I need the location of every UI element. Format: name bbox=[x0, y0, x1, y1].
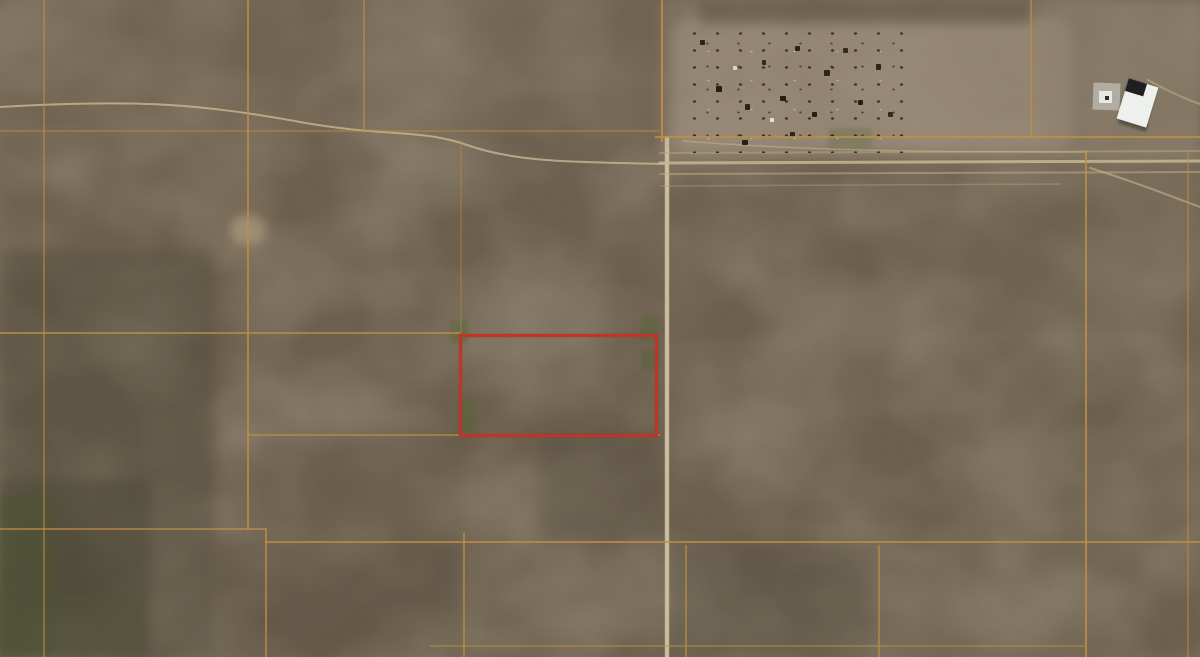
satellite-map-view[interactable] bbox=[0, 0, 1200, 657]
dirt-road bbox=[683, 141, 1085, 152]
dirt-road bbox=[0, 103, 666, 164]
dirt-road bbox=[1090, 168, 1200, 207]
dirt-road bbox=[660, 184, 1060, 186]
dirt-road bbox=[660, 161, 1200, 163]
dirt-roads-layer bbox=[0, 0, 1200, 657]
dirt-road bbox=[1148, 80, 1200, 104]
dirt-road bbox=[660, 172, 1200, 174]
